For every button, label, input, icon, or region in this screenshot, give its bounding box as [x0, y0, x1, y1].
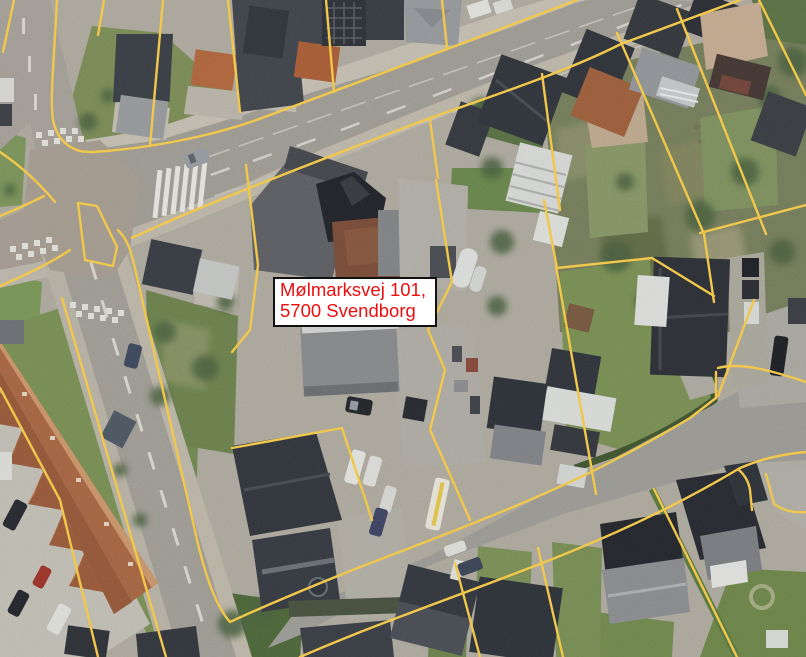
- svg-text:5700 Svendborg: 5700 Svendborg: [280, 300, 416, 321]
- svg-text:Mølmarksvej 101,: Mølmarksvej 101,: [280, 279, 426, 300]
